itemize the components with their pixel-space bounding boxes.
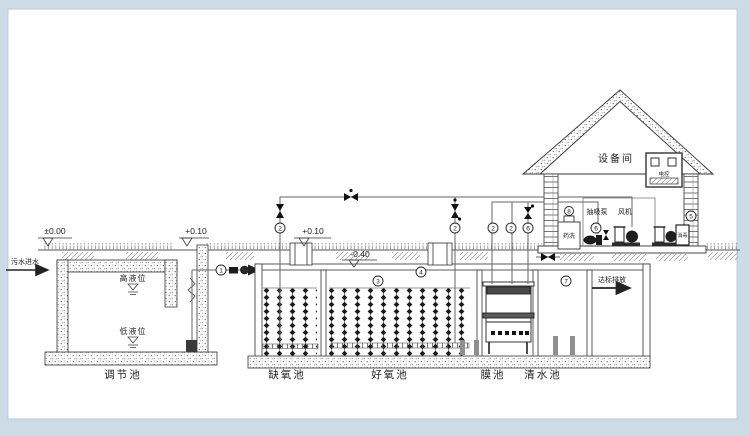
callout-blower-pipe: 5 xyxy=(686,211,696,221)
svg-text:2: 2 xyxy=(453,226,457,233)
inlet-label: 污水进水 xyxy=(11,257,39,266)
regulating-tank-label: 调节池 xyxy=(104,368,142,381)
panel-label: 电控 xyxy=(658,170,670,178)
elev-reg-top: +0.10 xyxy=(185,226,207,236)
callout-media: 3 xyxy=(373,276,383,286)
suction-pump-label: 抽吸泵 xyxy=(587,207,608,216)
valve-stem-dot xyxy=(349,189,352,192)
elev-water: -0.40 xyxy=(350,249,370,259)
outlet-label: 达标排放 xyxy=(598,275,626,284)
svg-text:5: 5 xyxy=(689,214,693,221)
callout-valve-4: 2 xyxy=(506,223,516,233)
svg-text:6: 6 xyxy=(594,226,598,233)
callout-clear-water: 7 xyxy=(561,276,571,286)
svg-text:2: 2 xyxy=(491,226,495,233)
drawing-canvas: 污水进水 达标排放 ±0.00 +0.10 +0.10 -0.40 高液位 低液… xyxy=(0,0,750,431)
callout-valve-1: 2 xyxy=(275,223,285,233)
process-diagram: 污水进水 达标排放 ±0.00 +0.10 +0.10 -0.40 高液位 低液… xyxy=(0,0,750,431)
elev-tank-top: +0.10 xyxy=(302,226,324,236)
svg-text:1: 1 xyxy=(219,268,223,275)
blower-label: 风机 xyxy=(618,207,632,216)
elev-ground: ±0.00 xyxy=(44,226,65,236)
flowmeter-symbol xyxy=(241,266,249,274)
callout-dosing: 8 xyxy=(565,207,574,216)
left-column xyxy=(544,174,558,246)
svg-text:6: 6 xyxy=(526,226,530,233)
membrane-tank-label: 膜池 xyxy=(481,368,506,381)
svg-text:2: 2 xyxy=(509,226,513,233)
callout-valve-2: 2 xyxy=(450,223,460,233)
svg-text:4: 4 xyxy=(419,270,423,277)
high-level-label: 高液位 xyxy=(120,273,147,283)
anoxic-tank-label: 缺氧池 xyxy=(268,368,306,381)
aeration-diffusers xyxy=(263,343,469,349)
svg-text:7: 7 xyxy=(564,279,568,286)
equipment-room-label: 设备间 xyxy=(598,152,634,165)
disinfection-label: 消毒 xyxy=(677,232,687,239)
callout-valve-3: 2 xyxy=(488,223,498,233)
low-level-label: 低液位 xyxy=(120,326,147,336)
callout-aeration: 4 xyxy=(416,267,426,277)
svg-text:8: 8 xyxy=(567,209,571,216)
svg-text:3: 3 xyxy=(376,279,380,286)
electric-panel xyxy=(646,153,682,187)
callout-lift-pump: 1 xyxy=(216,265,226,275)
callout-suction-line: 6 xyxy=(523,223,533,233)
callout-suction-pump: 6 xyxy=(591,223,601,233)
clear-water-tank-label: 清水池 xyxy=(524,368,562,381)
svg-text:2: 2 xyxy=(278,226,282,233)
aerobic-tank-label: 好氧池 xyxy=(371,368,409,381)
dosing-tank-label: 药洗 xyxy=(563,232,575,240)
submersible-pump xyxy=(186,340,197,352)
pipe-valve-symbol xyxy=(229,267,238,274)
